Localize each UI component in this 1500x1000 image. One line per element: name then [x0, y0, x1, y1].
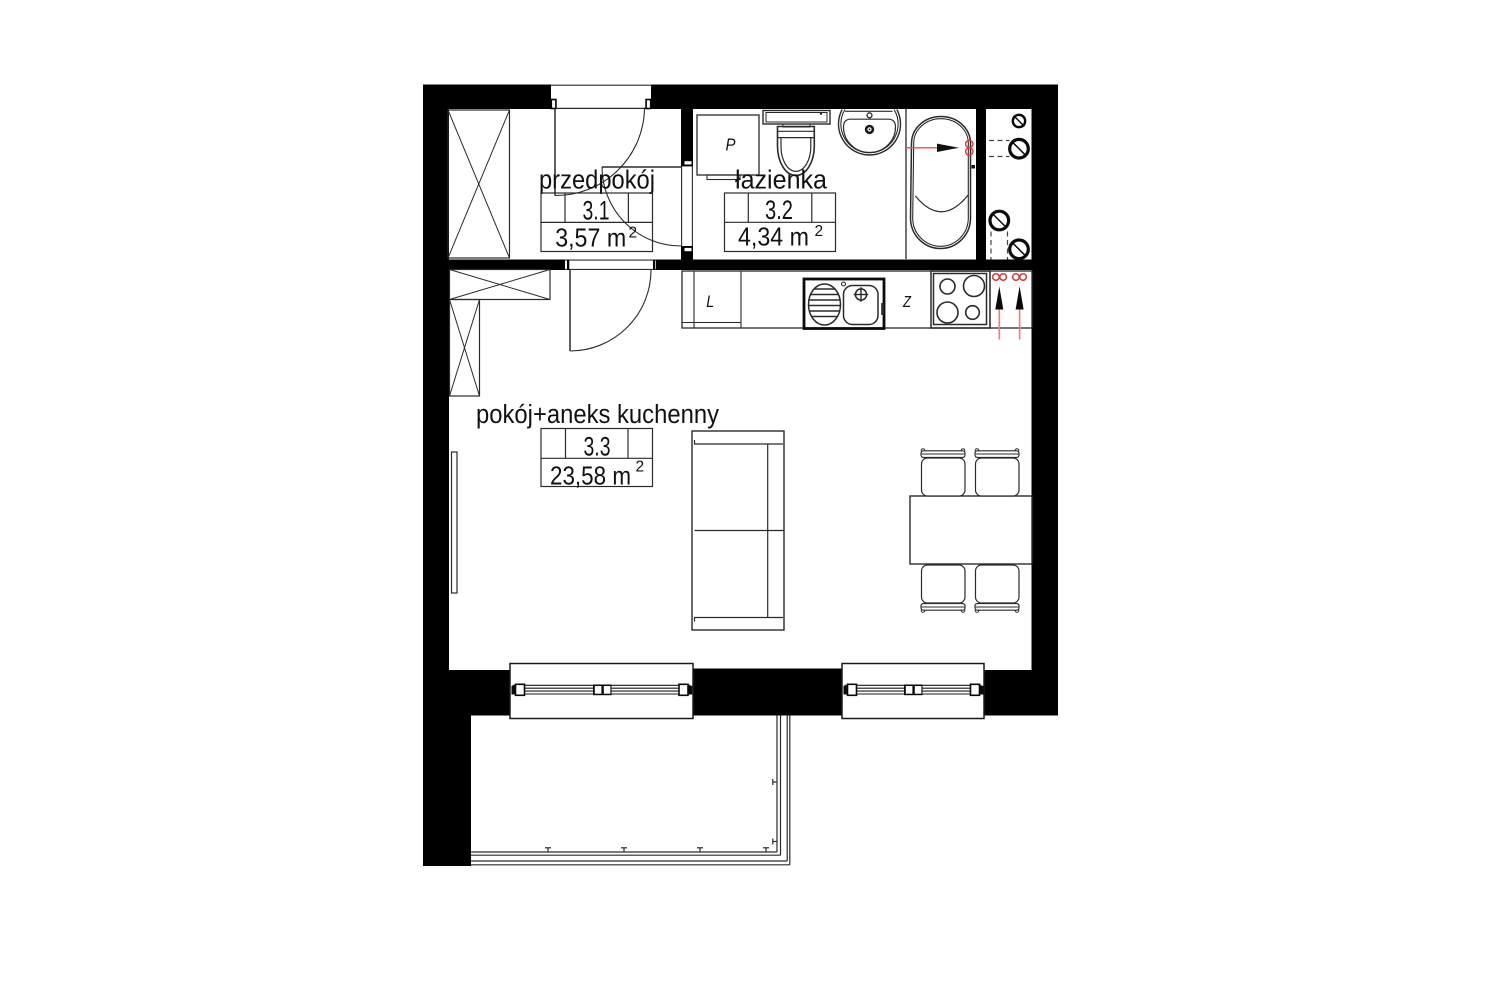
svg-text:23,58 m: 23,58 m [550, 461, 631, 491]
svg-text:P: P [726, 135, 736, 155]
svg-text:2: 2 [636, 459, 645, 476]
svg-text:przedpokój: przedpokój [539, 167, 655, 195]
svg-text:L: L [706, 292, 714, 311]
svg-text:2: 2 [815, 223, 824, 240]
svg-text:3.2: 3.2 [765, 195, 793, 225]
svg-text:3.1: 3.1 [583, 196, 610, 226]
svg-text:pokój+aneks kuchenny: pokój+aneks kuchenny [476, 401, 719, 429]
svg-text:3.3: 3.3 [584, 432, 611, 462]
svg-text:Z: Z [902, 294, 911, 311]
svg-text:łazienka: łazienka [735, 167, 828, 195]
svg-text:3,57 m: 3,57 m [555, 223, 626, 253]
svg-text:2: 2 [629, 225, 638, 242]
svg-text:4,34 m: 4,34 m [738, 222, 809, 252]
